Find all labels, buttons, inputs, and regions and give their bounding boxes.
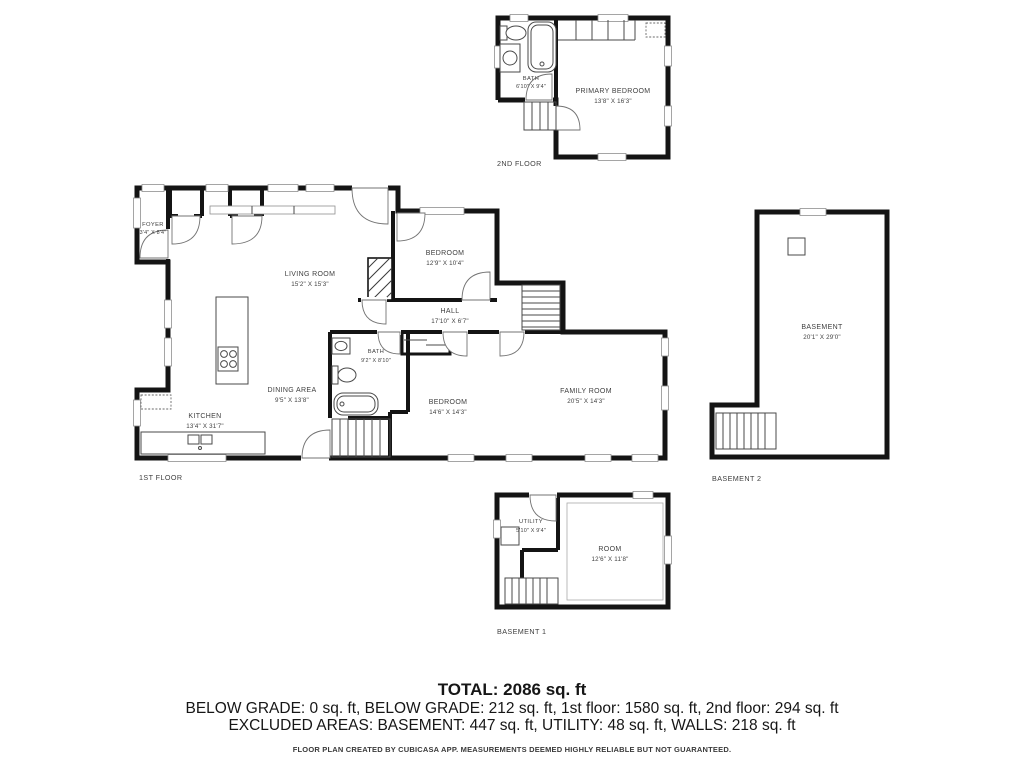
room-dims-dining-area: 9'5" X 13'8" xyxy=(275,397,309,404)
disclaimer-text: FLOOR PLAN CREATED BY CUBICASA APP. MEAS… xyxy=(0,745,1024,754)
window xyxy=(632,455,658,462)
room-label-hall: HALL xyxy=(441,308,460,315)
window xyxy=(662,338,669,356)
window xyxy=(598,154,626,161)
room-label-foyer: FOYER xyxy=(142,222,164,228)
floor-plan-basement1: UTILITY 5'10" X 9'4" ROOM 12'6" X 11'8" … xyxy=(494,492,672,637)
shelf-dashed-box xyxy=(646,23,665,37)
toilet-icon xyxy=(332,366,356,384)
door-arc-bedroom-2nd xyxy=(556,106,580,130)
floor-plan-basement2: BASEMENT 20'1" X 29'0" BASEMENT 2 xyxy=(712,209,887,484)
closet-2nd xyxy=(558,20,635,40)
window xyxy=(506,455,532,462)
sink-icon xyxy=(332,338,350,354)
room-dims-kitchen: 13'4" X 31'7" xyxy=(186,423,224,430)
window xyxy=(268,185,298,192)
floor-label-basement2: BASEMENT 2 xyxy=(712,474,761,483)
room-dims-room: 12'6" X 11'8" xyxy=(591,556,628,563)
room-dims-bath-2nd: 6'10" X 9'4" xyxy=(516,84,546,90)
window xyxy=(510,15,528,22)
floor-plan-1st: FOYER 3'4" X 8'4" LIVING ROOM 15'2" X 15… xyxy=(134,185,669,483)
window xyxy=(665,536,672,564)
exterior-walls-basement2 xyxy=(712,212,887,457)
door-arc-hall xyxy=(362,300,386,324)
window xyxy=(306,185,334,192)
stairs-2nd xyxy=(524,102,556,130)
door-arc-family-room xyxy=(500,332,524,356)
window xyxy=(633,492,653,499)
excluded-areas-text: EXCLUDED AREAS: BASEMENT: 447 sq. ft, UT… xyxy=(0,717,1024,735)
room-dims-basement: 20'1" X 29'0" xyxy=(803,334,841,341)
closet-nook-sliding-doors xyxy=(404,340,448,345)
window xyxy=(134,400,141,426)
room-dims-family-room: 20'5" X 14'3" xyxy=(567,398,605,405)
room-label-basement: BASEMENT xyxy=(801,324,843,331)
room-label-bath-2nd: BATH xyxy=(523,76,539,82)
room-label-kitchen: KITCHEN xyxy=(188,413,221,420)
bathtub-icon xyxy=(334,393,378,415)
room-label-bath-1st: BATH xyxy=(368,349,384,355)
room-label-living-room: LIVING ROOM xyxy=(285,271,336,278)
room-label-bedroom-lower: BEDROOM xyxy=(429,399,468,406)
window xyxy=(420,208,464,215)
kitchen-counter xyxy=(141,432,265,454)
stairs-basement2 xyxy=(716,413,776,449)
window xyxy=(168,455,226,462)
stairs-hall xyxy=(522,285,560,330)
floor-plan-2nd: BATH 6'10" X 9'4" PRIMARY BEDROOM 13'8" … xyxy=(495,15,672,169)
window xyxy=(165,338,172,366)
room-dims-hall: 17'10" X 6'7" xyxy=(431,318,469,325)
room-label-room: ROOM xyxy=(598,546,621,553)
room-dims-foyer: 3'4" X 8'4" xyxy=(140,230,167,236)
stairs-to-basement xyxy=(332,419,390,457)
kitchen-island xyxy=(216,297,248,384)
chimney-box xyxy=(788,238,805,255)
door-arc-back-door xyxy=(302,430,330,458)
door-arc-bedroom-lower xyxy=(443,332,467,356)
window xyxy=(134,198,141,228)
room-dims-utility: 5'10" X 9'4" xyxy=(516,528,546,534)
window xyxy=(800,209,826,216)
window xyxy=(165,300,172,328)
door-arc-front-entry xyxy=(352,188,388,224)
window xyxy=(206,185,228,192)
window-strip xyxy=(210,206,335,214)
room-label-dining-area: DINING AREA xyxy=(268,387,317,394)
window xyxy=(585,455,611,462)
room-label-family-room: FAMILY ROOM xyxy=(560,388,612,395)
bathtub-icon xyxy=(528,22,556,72)
room-label-bedroom-upper: BEDROOM xyxy=(426,250,465,257)
floor-areas-text: BELOW GRADE: 0 sq. ft, BELOW GRADE: 212 … xyxy=(0,700,1024,718)
room-dims-primary-bedroom: 13'8" X 16'3" xyxy=(594,98,632,105)
window xyxy=(665,46,672,66)
room-dims-bedroom-upper: 12'9" X 10'4" xyxy=(426,260,464,267)
door-arc-bedroom-upper xyxy=(462,272,490,300)
chimney xyxy=(368,258,392,300)
window xyxy=(662,386,669,410)
sink-icon xyxy=(500,44,520,72)
toilet-icon xyxy=(500,26,526,40)
floor-label-basement1: BASEMENT 1 xyxy=(497,627,546,636)
room-dims-bath-1st: 9'2" X 8'10" xyxy=(361,358,391,364)
closet-a-walls xyxy=(170,188,202,216)
door-arc-closet-b xyxy=(232,216,262,244)
floor-plan-canvas: BATH 6'10" X 9'4" PRIMARY BEDROOM 13'8" … xyxy=(0,0,1024,768)
floor-label-1st: 1ST FLOOR xyxy=(139,473,182,482)
door-arc-bedroom-upper-closet xyxy=(397,213,425,241)
window xyxy=(494,520,501,538)
room-label-primary-bedroom: PRIMARY BEDROOM xyxy=(575,88,650,95)
stairs-basement1 xyxy=(505,578,558,604)
window xyxy=(665,106,672,126)
total-area-text: TOTAL: 2086 sq. ft xyxy=(0,680,1024,700)
room-dims-living-room: 15'2" X 15'3" xyxy=(291,281,329,288)
door-arc-utility xyxy=(530,495,556,521)
floor-plan-page: { "floors": { "second": { "label": "2ND … xyxy=(0,0,1024,768)
window xyxy=(142,185,164,192)
room-label-utility: UTILITY xyxy=(519,519,543,525)
window xyxy=(448,455,474,462)
room-dims-bedroom-lower: 14'6" X 14'3" xyxy=(429,409,467,416)
door-arc-closet-a xyxy=(172,216,200,244)
floor-label-2nd: 2ND FLOOR xyxy=(497,159,542,168)
dishwasher-dashed xyxy=(141,395,171,409)
